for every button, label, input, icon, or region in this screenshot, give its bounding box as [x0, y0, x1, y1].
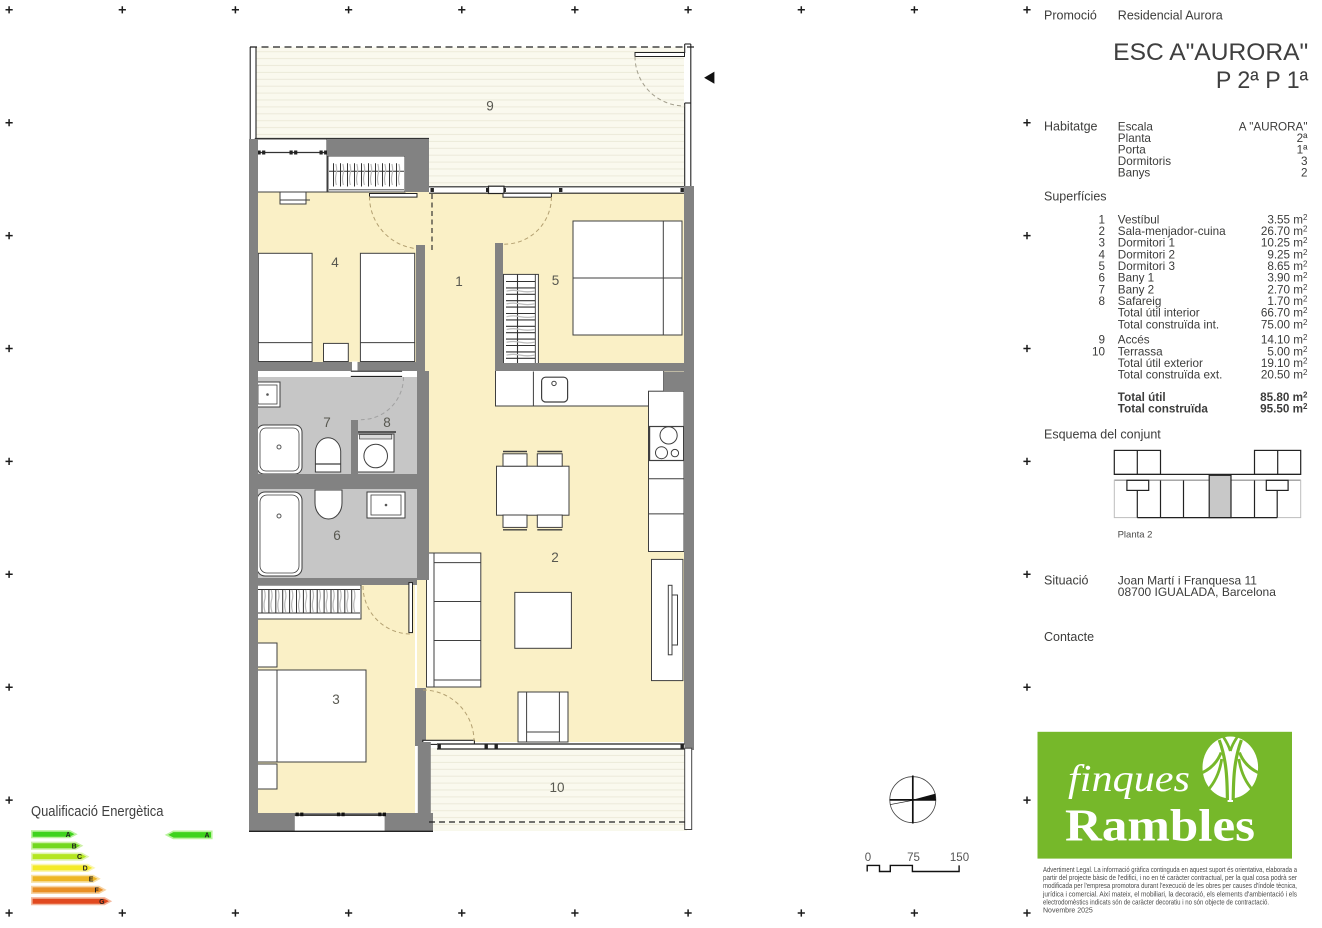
svg-text:P 2ª P 1ª: P 2ª P 1ª — [1216, 67, 1309, 94]
svg-text:Promoció: Promoció — [1044, 9, 1097, 23]
svg-text:Esquema del conjunt: Esquema del conjunt — [1044, 428, 1161, 442]
svg-text:8: 8 — [383, 415, 391, 430]
svg-text:75.00 m2: 75.00 m2 — [1261, 318, 1308, 332]
svg-text:A: A — [66, 832, 71, 839]
svg-text:08700 IGUALADA, Barcelona: 08700 IGUALADA, Barcelona — [1118, 585, 1276, 599]
svg-text:Contacte: Contacte — [1044, 630, 1094, 644]
svg-text:B: B — [72, 843, 77, 850]
svg-text:10: 10 — [1092, 345, 1106, 358]
svg-text:Novembre 2025: Novembre 2025 — [1043, 907, 1093, 914]
svg-text:Habitatge: Habitatge — [1044, 120, 1098, 134]
svg-text:Superfícies: Superfícies — [1044, 189, 1107, 203]
svg-text:Total construïda int.: Total construïda int. — [1118, 319, 1219, 332]
svg-text:4: 4 — [331, 255, 339, 270]
svg-text:Total construïda ext.: Total construïda ext. — [1118, 369, 1223, 382]
svg-text:Rambles: Rambles — [1065, 800, 1255, 851]
svg-text:3: 3 — [332, 692, 340, 707]
svg-text:9: 9 — [486, 99, 494, 114]
svg-text:A: A — [204, 833, 209, 840]
svg-text:C: C — [77, 854, 82, 861]
svg-text:75: 75 — [907, 852, 920, 864]
svg-text:electrodomèstics indicats són: electrodomèstics indicats són de caràcte… — [1043, 897, 1269, 906]
svg-text:Total construïda: Total construïda — [1118, 403, 1209, 416]
svg-text:1: 1 — [455, 274, 463, 289]
svg-text:20.50 m2: 20.50 m2 — [1261, 368, 1308, 382]
svg-text:E: E — [89, 876, 94, 883]
svg-text:10: 10 — [549, 780, 564, 795]
svg-text:0: 0 — [865, 852, 871, 864]
svg-text:Qualificació Energètica: Qualificació Energètica — [31, 804, 164, 820]
svg-text:Residencial Aurora: Residencial Aurora — [1118, 9, 1223, 23]
svg-text:7: 7 — [323, 415, 331, 430]
svg-text:D: D — [83, 866, 88, 873]
svg-text:F: F — [94, 888, 99, 895]
svg-text:5: 5 — [552, 273, 560, 288]
svg-text:Situació: Situació — [1044, 574, 1089, 588]
svg-text:Banys: Banys — [1118, 167, 1151, 180]
svg-text:ESC A"AURORA": ESC A"AURORA" — [1113, 39, 1308, 66]
svg-text:8: 8 — [1098, 295, 1105, 308]
svg-text:95.50 m2: 95.50 m2 — [1260, 402, 1308, 416]
svg-text:2: 2 — [1301, 167, 1308, 180]
svg-text:6: 6 — [333, 528, 341, 543]
svg-text:Planta 2: Planta 2 — [1118, 530, 1153, 541]
svg-text:150: 150 — [950, 852, 969, 864]
svg-text:G: G — [99, 899, 105, 906]
svg-text:2: 2 — [551, 550, 559, 565]
svg-text:finques: finques — [1068, 758, 1190, 800]
